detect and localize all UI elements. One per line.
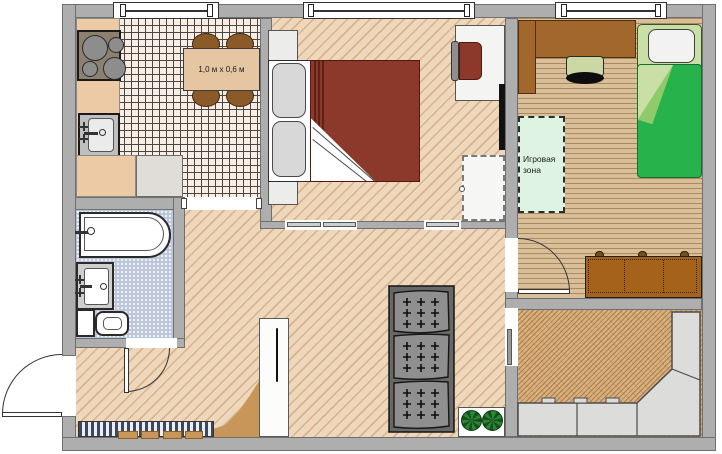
table-size-label: 1,0 м x 0,6 м <box>198 65 244 74</box>
faucet-icon <box>75 275 84 284</box>
sliding-door-icon <box>323 222 356 227</box>
bedroom-chair-seat <box>459 42 482 80</box>
kids-door-leaf <box>518 289 570 294</box>
faucet-icon <box>87 227 95 235</box>
toilet-tank <box>76 309 95 337</box>
hall-dark-sofa <box>388 285 455 433</box>
kitchen-stove <box>77 30 121 81</box>
entry-door-opening <box>62 356 76 416</box>
dresser-dotted-inner <box>588 259 697 293</box>
faucet-icon <box>84 132 98 135</box>
play-zone-label: Игровая зона <box>523 154 565 176</box>
bathtub <box>79 212 171 258</box>
bed-blanket <box>310 60 420 182</box>
faucet-icon <box>99 129 106 136</box>
shoes <box>163 431 182 439</box>
shoes <box>118 431 138 439</box>
passage-jamb <box>256 198 262 209</box>
plant-box <box>458 407 505 437</box>
outer-wall-right <box>702 4 716 451</box>
outer-wall-left-upper <box>62 4 76 356</box>
kitchen-counter-bottom-2 <box>136 155 183 197</box>
bedroom-chair-back <box>451 41 459 81</box>
kitchen-counter-bottom <box>76 155 136 197</box>
window-icon <box>113 2 219 19</box>
dresser-divider <box>624 260 625 293</box>
bed-pillow <box>272 121 306 177</box>
door-swing-icon <box>2 354 62 414</box>
bathtub-inner <box>84 217 164 251</box>
kids-dresser <box>585 256 702 298</box>
bedroom-nightstand <box>268 180 298 205</box>
kids-bed-pillow <box>648 29 695 63</box>
apartment-floor-plan: 1,0 м x 0,6 м Игровая зона <box>0 0 722 454</box>
sliding-door-icon <box>507 329 512 365</box>
kids-chair-back <box>566 72 604 84</box>
hall-wardrobe <box>259 318 289 437</box>
dining-table: 1,0 м x 0,6 м <box>183 48 260 91</box>
play-zone: Игровая зона <box>518 116 565 213</box>
entry-door-leaf <box>2 412 62 417</box>
stove-burner-icon <box>103 57 126 80</box>
wall-bathroom-right <box>173 197 185 348</box>
stove-burner-icon <box>108 37 124 53</box>
bathroom-sink <box>76 262 114 310</box>
faucet-icon <box>100 283 107 290</box>
shoes <box>141 431 159 439</box>
toilet-bowl <box>95 311 129 336</box>
sliding-door-icon <box>426 222 459 227</box>
window-icon <box>303 2 475 19</box>
faucet-icon <box>75 288 84 297</box>
kids-bed-blanket <box>637 64 702 178</box>
dresser-divider <box>663 260 664 293</box>
window-icon <box>555 2 667 19</box>
outer-wall-bottom <box>62 437 716 451</box>
wardrobe-handle <box>276 328 278 382</box>
wardrobe-knob <box>459 186 465 192</box>
stove-burner-icon <box>82 35 108 61</box>
kids-door-opening <box>505 238 518 292</box>
faucet-icon <box>79 134 88 143</box>
bedroom-nightstand <box>268 30 298 61</box>
corner-sofa <box>517 310 702 437</box>
passage-kitchen-hall <box>185 197 257 210</box>
sheet-fold <box>311 61 420 182</box>
sliding-door-icon <box>287 222 321 227</box>
kids-desk-left <box>518 20 536 94</box>
kids-desk-top <box>535 20 636 58</box>
bed-pillow <box>272 63 306 118</box>
toilet-bowl-inner <box>103 317 122 330</box>
bathroom-door-opening <box>126 338 177 348</box>
bedroom-wardrobe <box>462 155 505 221</box>
faucet-icon <box>80 285 92 288</box>
tv <box>499 84 505 150</box>
plant-icon <box>482 410 503 431</box>
stove-burner-icon <box>82 61 98 77</box>
bathroom-door-leaf <box>124 348 129 393</box>
shoes <box>185 431 203 439</box>
plant-icon <box>461 410 482 431</box>
wall-bathroom-top <box>62 197 185 210</box>
passage-jamb <box>181 198 187 209</box>
kitchen-sink <box>78 113 120 157</box>
wall-kids-living-divider <box>505 298 702 310</box>
faucet-icon <box>79 122 88 131</box>
